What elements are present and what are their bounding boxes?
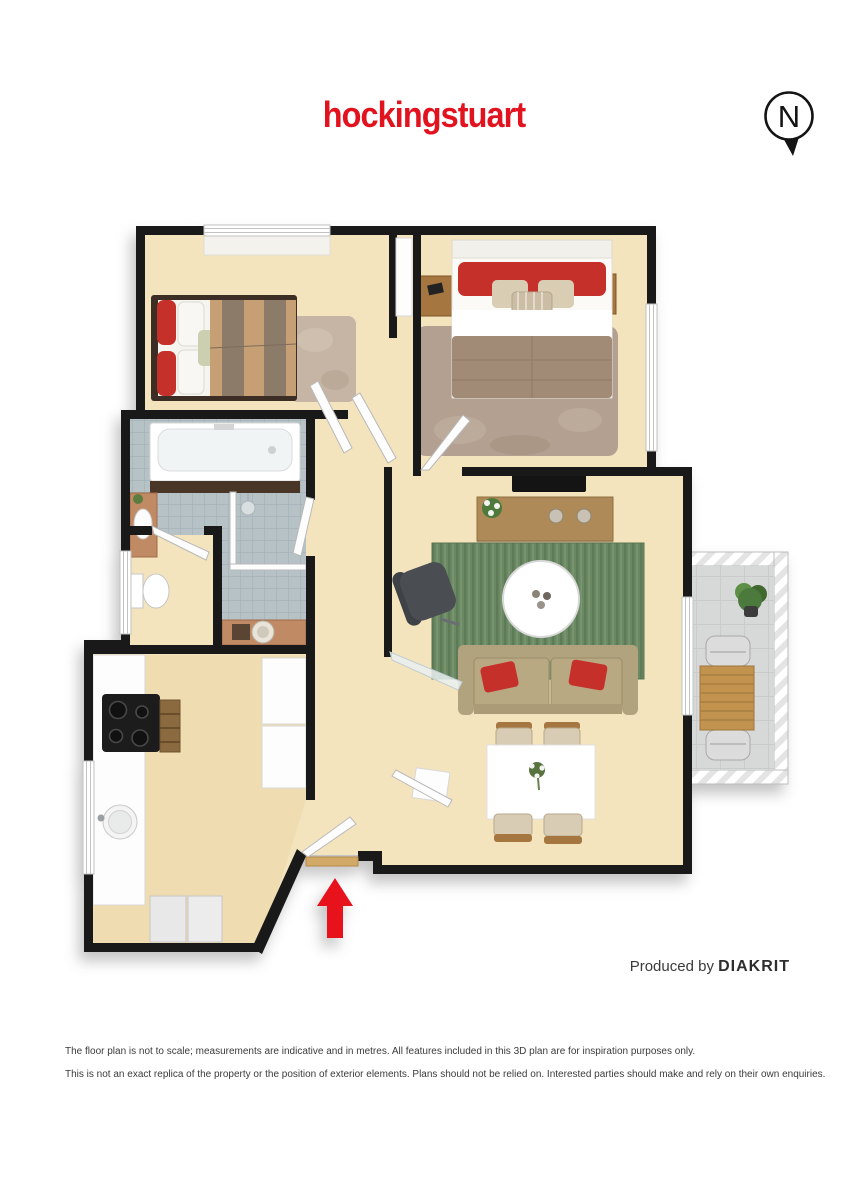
queen-bed (452, 240, 612, 398)
red-pillow (157, 351, 176, 396)
striped-duvet (210, 300, 296, 396)
dining-chair (544, 722, 580, 748)
produced-by-credit: Produced by DIAKRIT (630, 958, 790, 976)
tv (512, 474, 586, 492)
bathtub (150, 423, 300, 493)
floor-plan-page: hockingstuart N (0, 0, 848, 1200)
speaker (549, 509, 563, 523)
compass-north-indicator: N (756, 90, 826, 176)
wc-vanity (222, 620, 306, 645)
disclaimer-line-2: This is not an exact replica of the prop… (65, 1069, 825, 1080)
pantry-cabinet (262, 658, 306, 724)
balcony-railing (688, 552, 788, 566)
balcony-chair (706, 730, 750, 760)
window (83, 761, 94, 874)
disclaimer-line-1: The floor plan is not to scale; measurem… (65, 1046, 825, 1057)
dining-chair (544, 814, 582, 844)
balcony (688, 552, 788, 784)
cooktop (102, 694, 160, 752)
red-pillow (157, 300, 176, 345)
bedroom2-rug (290, 316, 356, 402)
sofa-arm (622, 645, 638, 715)
sliding-door (682, 597, 693, 715)
kitchen-counter (93, 655, 145, 905)
pantry-cabinet (262, 726, 306, 788)
compass-north-label: N (778, 99, 800, 134)
balcony-railing (774, 552, 788, 784)
speaker (577, 509, 591, 523)
appliance (150, 896, 186, 942)
spice-rack (160, 700, 180, 752)
balcony-table (700, 666, 754, 730)
balcony-chair (706, 636, 750, 666)
balcony-railing (688, 770, 788, 784)
double-bed (151, 295, 297, 401)
toilet (131, 574, 169, 608)
entry-threshold (306, 857, 358, 866)
nightstand (420, 276, 456, 316)
window (120, 551, 131, 634)
skylight-window (204, 235, 330, 255)
dining-chair (494, 814, 532, 842)
brand-logo: hockingstuart (42, 94, 805, 136)
tv-cabinet (477, 497, 613, 547)
small-plant (133, 494, 143, 504)
coffee-table (503, 561, 579, 637)
producer-brand: DIAKRIT (718, 958, 790, 975)
disclaimer-text: The floor plan is not to scale; measurem… (65, 1046, 825, 1092)
window (646, 304, 657, 451)
headboard (452, 240, 612, 260)
sofa (458, 645, 638, 715)
produced-by-prefix: Produced by (630, 958, 718, 975)
entry-arrow-icon (317, 878, 353, 938)
bathtub-panel (150, 481, 300, 493)
window (204, 225, 330, 236)
appliance (188, 896, 222, 942)
dining-chair (496, 722, 532, 748)
sofa-arm (458, 645, 474, 715)
bathroom-vanity (130, 493, 157, 557)
wardrobe (396, 238, 412, 316)
red-pillow-row (458, 262, 606, 296)
floor-plan-rendering (60, 215, 800, 975)
dining-table (487, 745, 595, 819)
